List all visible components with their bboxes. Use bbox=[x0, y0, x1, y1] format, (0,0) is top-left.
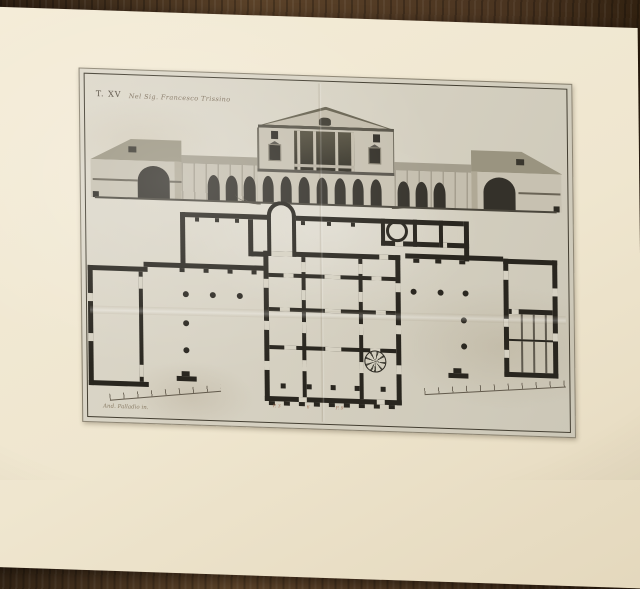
wall-pilaster bbox=[453, 368, 461, 373]
wall-opening bbox=[139, 277, 143, 289]
scale-bar-right bbox=[424, 380, 566, 395]
wall-opening bbox=[302, 360, 306, 371]
portico-column-base bbox=[331, 385, 336, 390]
plan-wall bbox=[180, 212, 186, 265]
left-barn-vent bbox=[128, 146, 136, 152]
wall-opening bbox=[358, 264, 362, 274]
wall-opening bbox=[396, 283, 401, 292]
wall-pilaster bbox=[413, 259, 419, 263]
scale-bar-left bbox=[109, 385, 221, 401]
wall-opening bbox=[503, 271, 508, 280]
plan-wall bbox=[448, 373, 468, 379]
plan-wall bbox=[503, 259, 557, 266]
plan-wall bbox=[413, 220, 417, 247]
column-dot bbox=[461, 343, 467, 349]
wall-opening bbox=[512, 309, 519, 314]
portico-column-base bbox=[355, 386, 360, 391]
plan-wall bbox=[439, 221, 443, 248]
terrace-pier bbox=[389, 405, 395, 409]
right-barn-vent bbox=[516, 159, 524, 165]
wall-opening bbox=[302, 322, 306, 333]
wall-opening bbox=[284, 345, 296, 349]
stall-line bbox=[533, 342, 535, 373]
wall-opening bbox=[396, 365, 401, 374]
mat-board: T. XV Nel Sig. Francesco Trissino bbox=[0, 6, 640, 589]
wall-opening bbox=[553, 333, 558, 341]
scale-mark: 6 bbox=[307, 405, 310, 410]
column-dot bbox=[411, 289, 417, 295]
wall-opening bbox=[302, 290, 306, 300]
plan-wall bbox=[292, 215, 296, 257]
wall-opening bbox=[504, 350, 509, 358]
terrace-pier bbox=[359, 404, 365, 408]
wall-opening bbox=[271, 251, 292, 257]
scale-mark: P. 3 bbox=[273, 404, 281, 409]
wall-opening bbox=[359, 362, 363, 373]
plan-wall bbox=[88, 265, 94, 385]
column-dot bbox=[210, 292, 216, 298]
wall-opening bbox=[552, 288, 557, 296]
wall-pilaster bbox=[182, 371, 190, 376]
spiral-stair bbox=[364, 350, 386, 373]
wall-opening bbox=[264, 361, 269, 370]
right-barn-side bbox=[471, 172, 477, 210]
wall-pilaster bbox=[204, 269, 209, 273]
wall-opening bbox=[359, 292, 363, 302]
portico-column-base bbox=[281, 383, 286, 388]
wall-opening bbox=[371, 276, 381, 280]
wall-pilaster bbox=[351, 223, 355, 227]
wall-opening bbox=[301, 262, 305, 272]
terrace-pier bbox=[344, 403, 350, 407]
wall-pilaster bbox=[235, 219, 239, 223]
wall-opening bbox=[140, 365, 144, 377]
stall-line bbox=[545, 342, 547, 373]
wall-pilaster bbox=[435, 259, 441, 263]
wall-opening bbox=[264, 279, 269, 288]
plan-wall bbox=[405, 253, 503, 261]
plan-wall bbox=[381, 219, 385, 246]
engraved-print: T. XV Nel Sig. Francesco Trissino bbox=[79, 68, 576, 439]
wall-pilaster bbox=[252, 270, 257, 274]
wall-opening bbox=[88, 333, 93, 341]
scale-marks: P. 3 6 P. 9 bbox=[273, 404, 344, 411]
wall-opening bbox=[88, 293, 93, 301]
column-dot bbox=[438, 290, 444, 296]
stall-line bbox=[521, 341, 523, 372]
scale-mark: P. 9 bbox=[336, 406, 344, 411]
plan-wall bbox=[267, 214, 271, 256]
round-room bbox=[386, 220, 408, 243]
wall-opening bbox=[359, 324, 363, 335]
column-dot bbox=[183, 291, 189, 297]
column-dot bbox=[463, 290, 469, 296]
plan-wall bbox=[504, 372, 558, 379]
wall-pilaster bbox=[215, 218, 219, 222]
wall-pilaster bbox=[301, 221, 305, 225]
wall-pilaster bbox=[459, 260, 465, 264]
wall-pilaster bbox=[228, 270, 233, 274]
column-dot bbox=[183, 320, 189, 326]
wall-opening bbox=[264, 321, 269, 330]
column-dot bbox=[237, 293, 243, 299]
wall-opening bbox=[284, 273, 294, 277]
portico-column-base bbox=[381, 387, 386, 392]
aedicule-window bbox=[369, 148, 380, 163]
wall-pilaster bbox=[195, 217, 199, 221]
wall-opening bbox=[325, 347, 341, 352]
attic-window bbox=[373, 134, 380, 142]
portico-column-base bbox=[307, 384, 312, 389]
terrace-pier bbox=[374, 404, 380, 408]
wall-opening bbox=[379, 255, 388, 260]
attic-window bbox=[271, 131, 278, 139]
wall-pilaster bbox=[180, 268, 185, 272]
wall-opening bbox=[325, 275, 341, 280]
wall-pilaster bbox=[327, 222, 331, 226]
column-dot bbox=[183, 347, 189, 353]
wall-opening bbox=[396, 325, 401, 334]
plan-wall bbox=[177, 376, 197, 382]
aedicule-window bbox=[269, 145, 280, 160]
